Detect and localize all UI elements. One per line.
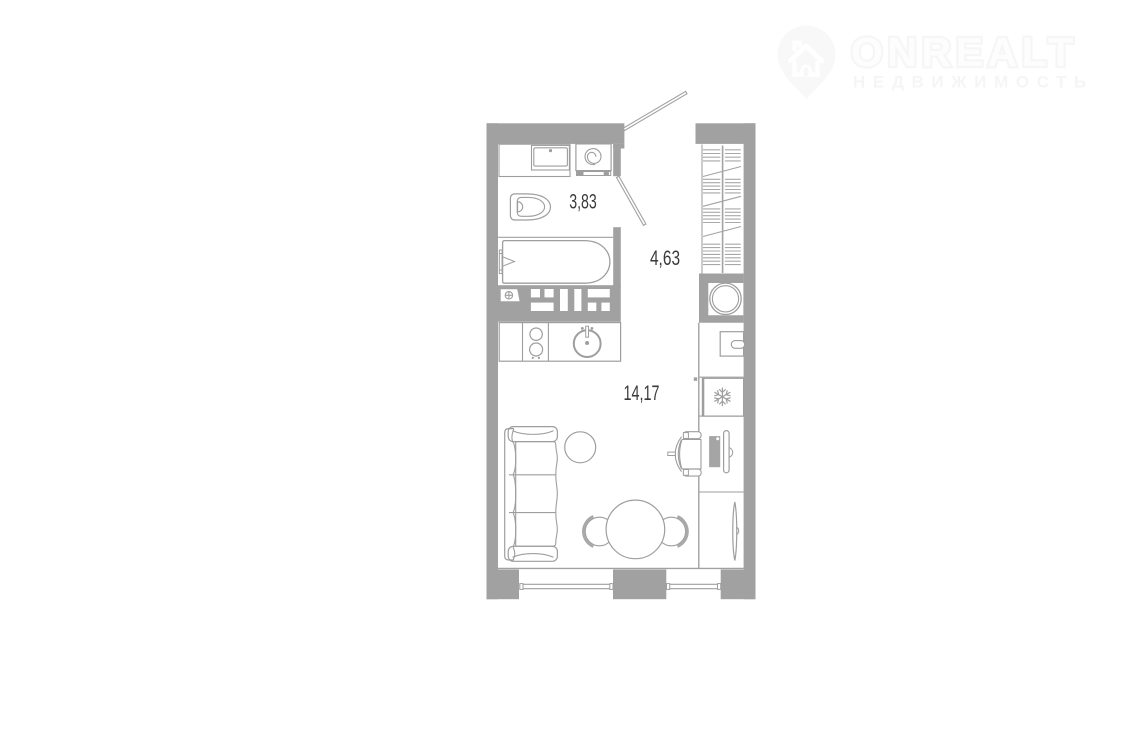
svg-text:ONREALT: ONREALT [851,29,1078,75]
svg-text:НЕДВИЖИМОСТЬ: НЕДВИЖИМОСТЬ [853,73,1094,92]
svg-text:14,17: 14,17 [623,380,659,405]
svg-text:3,83: 3,83 [569,190,597,214]
svg-text:4,63: 4,63 [650,245,680,269]
